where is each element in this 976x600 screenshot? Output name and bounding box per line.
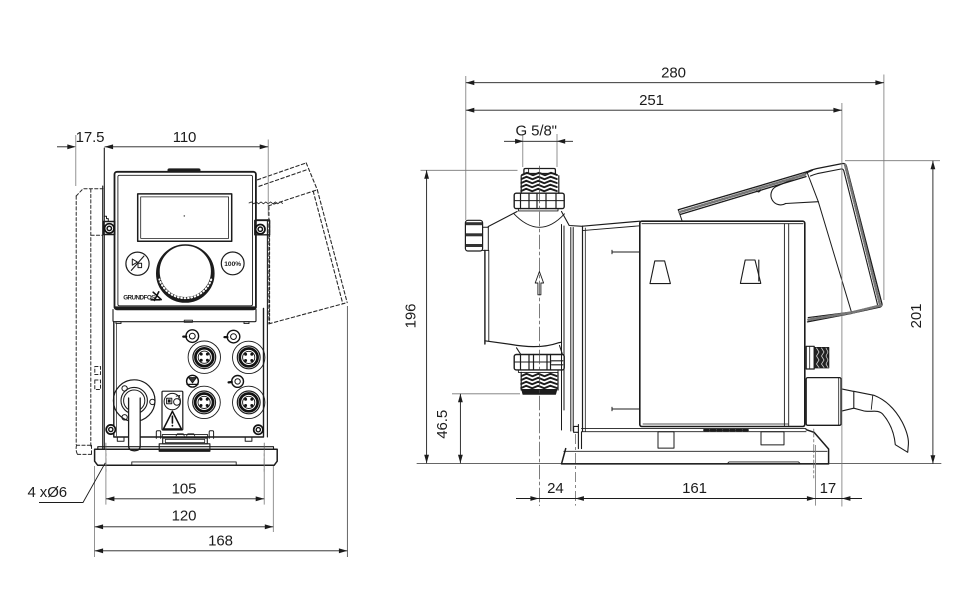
svg-text:G 5/8": G 5/8" — [516, 123, 557, 140]
svg-text:24: 24 — [547, 480, 564, 497]
svg-text:201: 201 — [908, 304, 925, 329]
svg-text:161: 161 — [682, 480, 707, 497]
svg-text:251: 251 — [639, 92, 664, 109]
svg-text:GRUNDFOS: GRUNDFOS — [123, 294, 155, 301]
svg-text:120: 120 — [172, 507, 197, 524]
svg-text:17.5: 17.5 — [76, 129, 105, 146]
svg-text:110: 110 — [173, 129, 197, 146]
svg-text:46.5: 46.5 — [434, 410, 451, 439]
svg-text:4 xØ6: 4 xØ6 — [28, 484, 68, 501]
svg-text:100%: 100% — [224, 261, 241, 268]
svg-text:196: 196 — [403, 304, 420, 329]
svg-text:17: 17 — [820, 480, 837, 497]
svg-text:168: 168 — [208, 532, 233, 549]
svg-text:280: 280 — [661, 64, 686, 81]
svg-text:105: 105 — [172, 481, 197, 498]
